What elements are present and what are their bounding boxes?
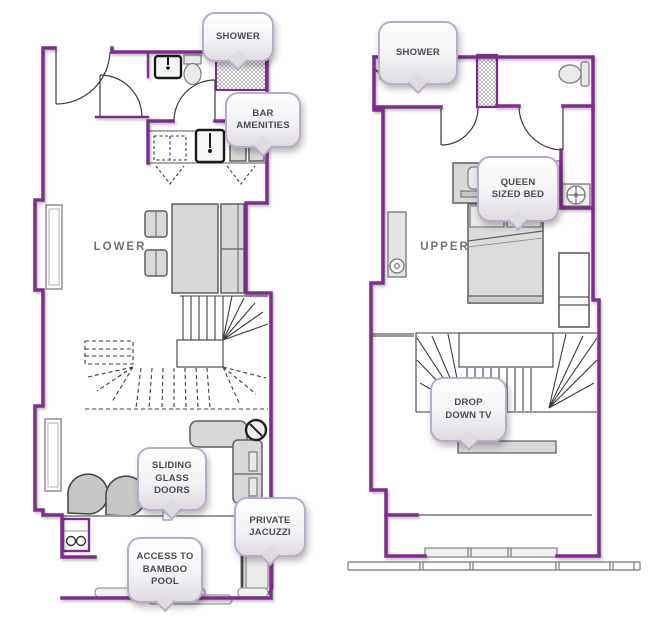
callout-bar-amenities: BAR AMENITIES (225, 92, 301, 148)
upper-floor-label: UPPER (415, 241, 475, 253)
lounge-chairs (68, 474, 146, 516)
bathroom-door (100, 75, 142, 117)
grill-cabinet (63, 519, 89, 551)
window-bay-lower (45, 419, 61, 491)
window-bay-upper (46, 205, 62, 289)
staircase-lower (85, 296, 268, 409)
callout-private-jacuzzi: PRIVATE JACUZZI (234, 497, 306, 557)
dining-table (172, 204, 218, 293)
lower-floor-label: LOWER (90, 241, 150, 253)
toilet-lower (184, 55, 201, 85)
floorplan-svg (0, 0, 651, 623)
callout-drop-down-tv: DROP DOWN TV (430, 377, 507, 442)
bar-sink (196, 130, 224, 162)
bathroom-sink (155, 56, 181, 78)
callout-shower-upper: SHOWER (378, 21, 458, 85)
fan-coil-unit (562, 184, 590, 206)
floorplan-canvas: LOWER UPPER SHOWER BAR AMENITIES SLIDING… (0, 0, 651, 623)
callout-access-bamboo-pool: ACCESS TO BAMBOO POOL (127, 537, 203, 603)
entry-door (56, 50, 110, 104)
dining-set (145, 204, 244, 293)
bedroom-door (441, 108, 478, 145)
shower-room-door (174, 80, 215, 121)
callout-queen-sized-bed: QUEEN SIZED BED (477, 156, 559, 222)
wardrobe-cabinet (388, 212, 406, 277)
upper-floor-plan (348, 55, 640, 570)
toilet-upper (559, 62, 589, 86)
balcony-track (425, 548, 557, 557)
toilet-room-door (519, 106, 563, 150)
bench-dresser (559, 253, 589, 327)
closet-hatched (477, 55, 497, 107)
callout-shower-lower: SHOWER (202, 12, 274, 62)
callout-sliding-glass-doors: SLIDING GLASS DOORS (137, 447, 207, 511)
balcony-railing (348, 562, 640, 570)
